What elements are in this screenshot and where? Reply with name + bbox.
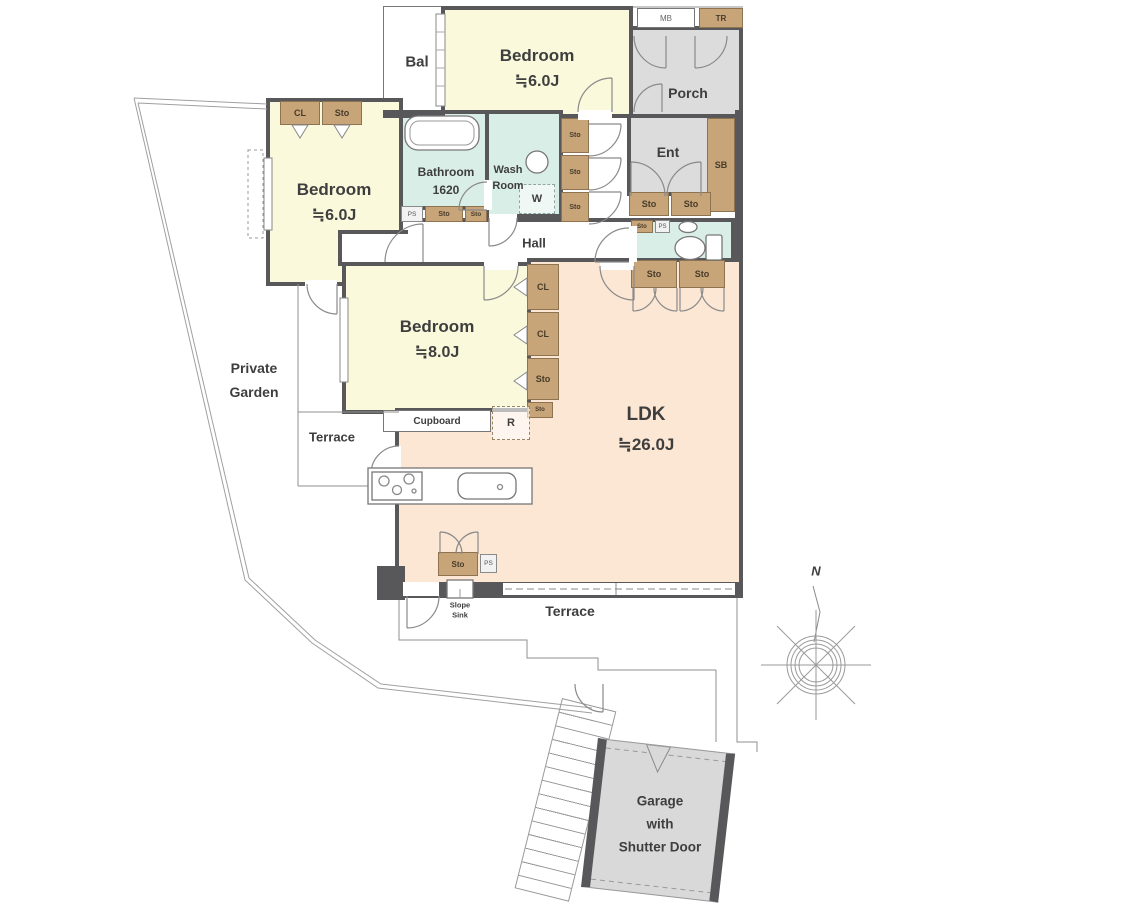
cupboard-label: Cupboard [413, 416, 460, 427]
shoe-box: SB [707, 118, 735, 212]
balcony-label: Bal [405, 54, 428, 71]
wall-east [735, 110, 743, 262]
ldk-storage-1: Sto [631, 260, 677, 288]
sto-label: Sto [569, 132, 580, 139]
ldk-south-storage: Sto [438, 552, 478, 576]
entrance-storage-1: Sto [629, 192, 669, 216]
garage-label-3: Shutter Door [619, 840, 702, 855]
bedroom-mid-size: ≒8.0J [415, 342, 460, 362]
room-bedroom-mid [342, 262, 534, 414]
sto-label: Sto [569, 169, 580, 176]
storage-column-3: Sto [561, 192, 589, 222]
bedroom-left-size: ≒6.0J [312, 205, 357, 225]
cupboard: Cupboard [383, 410, 491, 432]
slope-sink-label-2: Sink [452, 611, 468, 620]
meter-box-label: MB [660, 14, 672, 23]
garage-label-1: Garage [637, 794, 684, 809]
bath-pipe-space: PS [401, 206, 423, 222]
garage-label-2: with [647, 817, 674, 832]
trunk-room-label: TR [716, 14, 727, 23]
porch-label: Porch [668, 85, 708, 101]
sto-label: Sto [695, 269, 710, 279]
south-pipe-space: PS [480, 554, 497, 573]
sto-label: Sto [438, 211, 449, 218]
kitchen-side-storage: Sto [527, 402, 553, 418]
bath-storage-1: Sto [425, 206, 463, 222]
sto-label: Sto [569, 204, 580, 211]
refrigerator-label: R [507, 417, 515, 429]
bath-storage-2: Sto [465, 206, 487, 222]
floor-plan: MB TR CL Sto Sto Sto Sto SB Sto Sto Sto … [0, 0, 1130, 906]
sb-label: SB [715, 160, 728, 170]
meter-box: MB [637, 8, 695, 28]
ldk-storage-2: Sto [679, 260, 725, 288]
bathroom-size: 1620 [433, 183, 460, 197]
slope-sink-label-1: Slope [450, 601, 470, 610]
entrance-label: Ent [657, 144, 680, 160]
room-porch [629, 26, 743, 118]
cl-label: CL [537, 282, 549, 292]
terrace-upper-label: Terrace [309, 430, 355, 445]
sto-label: Sto [647, 269, 662, 279]
toilet-pipe-space: PS [655, 220, 670, 233]
closet-bedroom-left-cl: CL [280, 101, 320, 125]
sto-label: Sto [335, 108, 350, 118]
toilet-storage: Sto [631, 220, 653, 233]
wall-south [391, 582, 743, 596]
ldk-size: ≒26.0J [618, 435, 675, 455]
bedroom-left-label: Bedroom [297, 180, 372, 200]
garden-label-2: Garden [229, 384, 278, 400]
storage-column-1: Sto [561, 118, 589, 153]
washer-label: W [532, 193, 542, 205]
cl-label: CL [537, 329, 549, 339]
wall-under-balcony [383, 110, 445, 118]
bedroom-mid-closet-1: CL [527, 264, 559, 310]
sto-label: Sto [684, 199, 699, 209]
sto-label: Sto [535, 407, 545, 413]
sto-label: Sto [637, 224, 647, 230]
sto-label: Sto [536, 374, 551, 384]
ps-label: PS [658, 224, 666, 230]
sto-label: Sto [642, 199, 657, 209]
ps-label: PS [484, 560, 493, 567]
sto-label: Sto [452, 560, 465, 569]
refrigerator-space: R [492, 406, 530, 440]
bedroom-mid-storage: Sto [527, 358, 559, 400]
room-hall-west [338, 230, 408, 266]
trunk-room-box: TR [699, 8, 743, 28]
washroom-label-1: Wash [494, 164, 523, 176]
bedroom-top-label: Bedroom [500, 46, 575, 66]
compass-rose [761, 586, 871, 720]
cl-label: CL [294, 108, 306, 118]
compass-north-label: N [811, 564, 820, 579]
storage-column-2: Sto [561, 155, 589, 190]
bathroom-label: Bathroom [418, 165, 475, 179]
garden-label-1: Private [231, 360, 278, 376]
bedroom-top-size: ≒6.0J [515, 71, 560, 91]
hall-label: Hall [522, 236, 546, 251]
washroom-label-2: Room [492, 180, 523, 192]
bedroom-mid-closet-2: CL [527, 312, 559, 356]
closet-bedroom-left-sto: Sto [322, 101, 362, 125]
washer-space: W [519, 184, 555, 214]
ps-label: PS [408, 211, 417, 218]
terrace-lower-label: Terrace [545, 603, 595, 619]
sto-label: Sto [471, 211, 481, 218]
ldk-kitchen-join [523, 414, 539, 592]
bedroom-mid-label: Bedroom [400, 317, 475, 337]
entrance-storage-2: Sto [671, 192, 711, 216]
wall-sw-corner [377, 566, 405, 600]
ldk-label: LDK [626, 404, 665, 426]
room-ldk [527, 258, 743, 598]
